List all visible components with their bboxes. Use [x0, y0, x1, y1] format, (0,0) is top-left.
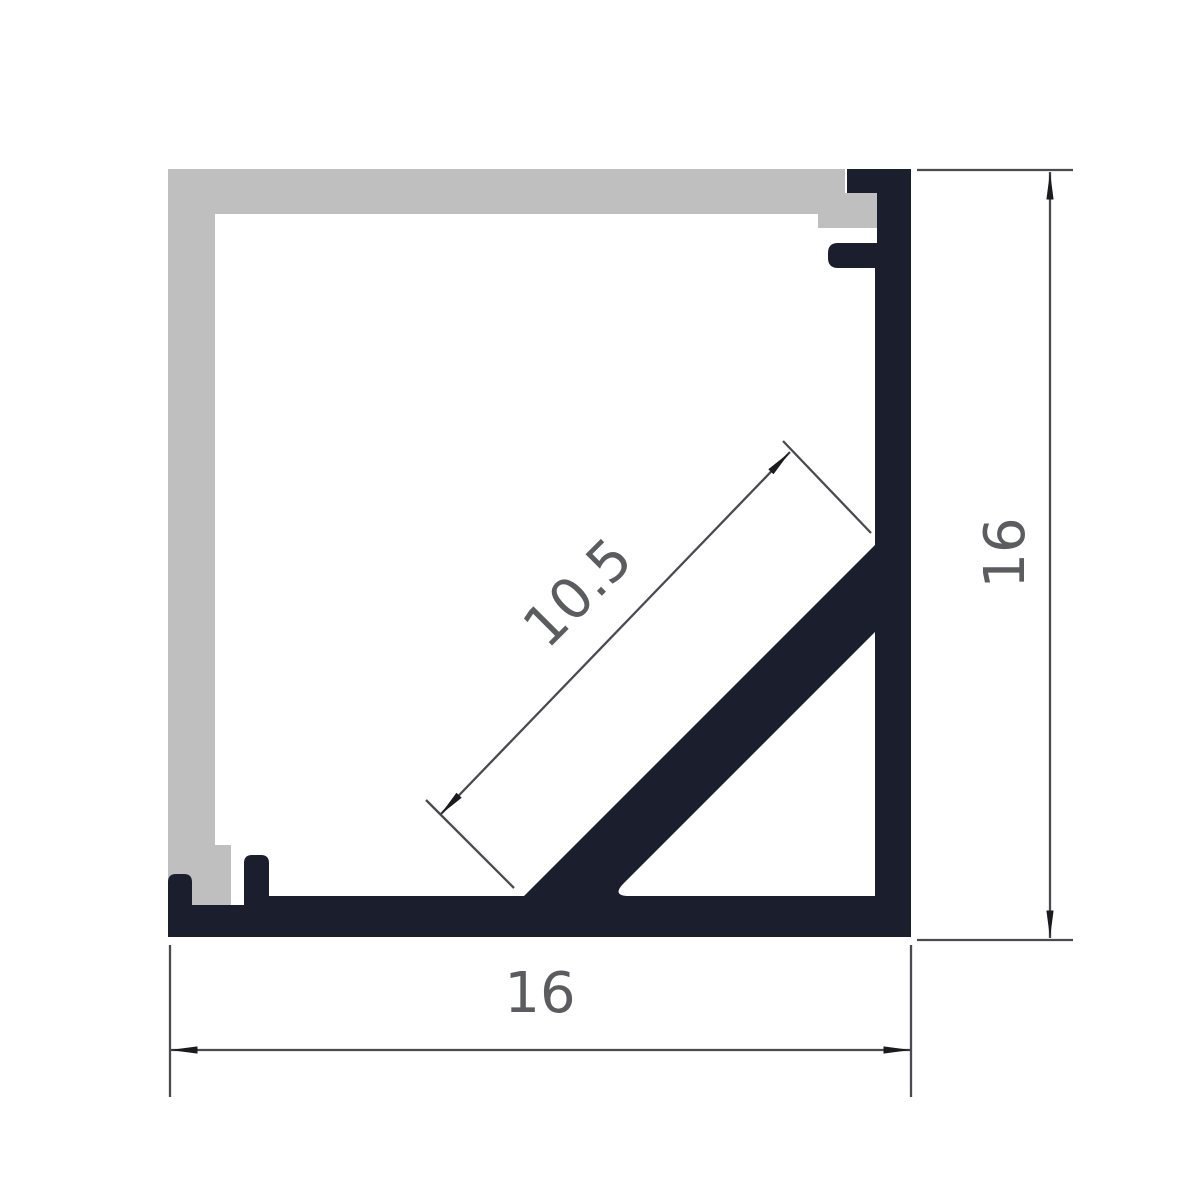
- profile-drawing: 16 16 10.5: [0, 0, 1200, 1200]
- height-dimension-label: 16: [973, 517, 1038, 588]
- width-dimension-label: 16: [504, 961, 575, 1026]
- drawing-canvas: 16 16 10.5: [0, 0, 1200, 1200]
